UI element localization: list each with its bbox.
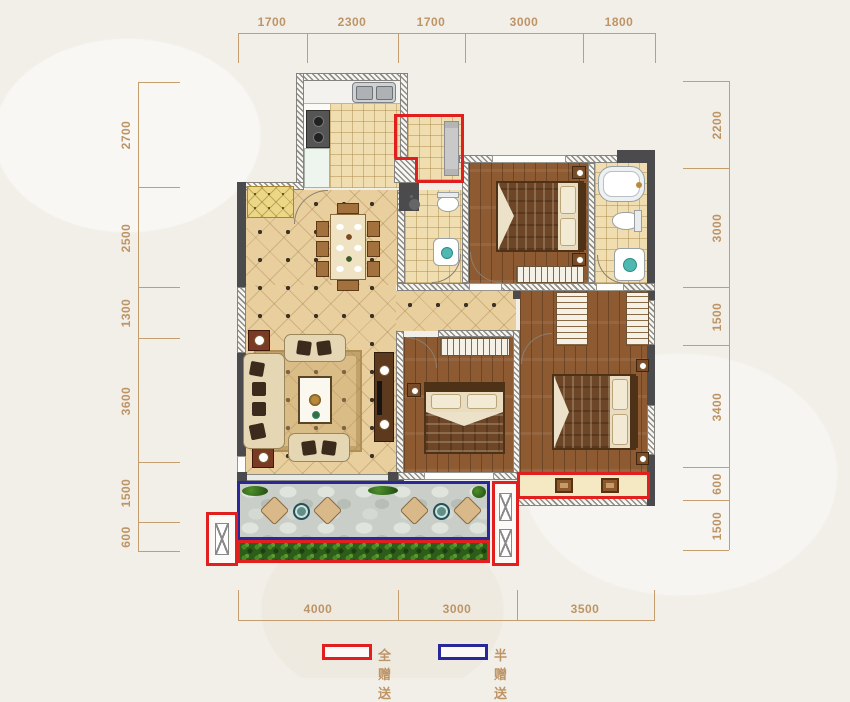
lamp-icon bbox=[576, 169, 584, 177]
dim-label: 3000 bbox=[710, 208, 724, 248]
bedroom-b-north-wall bbox=[438, 330, 520, 337]
bedroom-b-window bbox=[424, 472, 494, 480]
sofa-cushion bbox=[321, 440, 337, 456]
dim-label: 4000 bbox=[298, 602, 338, 616]
dining-chair bbox=[337, 203, 359, 214]
pillow bbox=[467, 394, 497, 409]
toilet bbox=[437, 196, 459, 212]
coffee-table-decor bbox=[309, 394, 321, 406]
wardrobe-a bbox=[516, 266, 584, 283]
dim-label: 2200 bbox=[710, 105, 724, 145]
shower-icon bbox=[409, 199, 420, 210]
sofa-cushion bbox=[316, 340, 332, 356]
pillow bbox=[560, 186, 576, 214]
bedroom-a-door-gap bbox=[469, 283, 502, 291]
sofa-cushion bbox=[252, 382, 266, 396]
nightstand bbox=[572, 166, 586, 179]
ac-unit-icon bbox=[215, 523, 229, 555]
speaker-icon bbox=[379, 365, 390, 376]
pillow bbox=[560, 218, 576, 246]
dim-tick bbox=[138, 551, 180, 552]
stool-bay-full-gift-zone bbox=[517, 472, 650, 499]
dim-tick bbox=[138, 82, 180, 83]
sink-bowl bbox=[623, 258, 637, 272]
dim-tick bbox=[655, 33, 656, 63]
dim-label: 600 bbox=[710, 464, 724, 504]
headboard bbox=[426, 384, 503, 392]
ac-unit-icon bbox=[499, 493, 512, 521]
dim-tick bbox=[138, 522, 180, 523]
dining-chair bbox=[337, 280, 359, 291]
dim-tick bbox=[654, 590, 655, 620]
pillow bbox=[612, 414, 628, 445]
legend-half-gift-swatch bbox=[438, 644, 488, 660]
left-window bbox=[237, 287, 246, 353]
wardrobe-c-right bbox=[626, 292, 649, 346]
legend-full-gift-label: 全赠送 bbox=[378, 645, 391, 702]
stool bbox=[555, 478, 573, 493]
toilet-tank bbox=[634, 210, 642, 232]
kitchen-tile-floor bbox=[330, 103, 400, 188]
hedge-full-gift-zone bbox=[237, 540, 490, 563]
dim-tick bbox=[138, 187, 180, 188]
dim-label: 1300 bbox=[119, 293, 133, 333]
bathroom1-sink bbox=[614, 248, 645, 281]
dining-table bbox=[330, 214, 366, 280]
kitchen-cabinet bbox=[304, 148, 330, 188]
lamp-icon bbox=[258, 452, 269, 463]
speaker-icon bbox=[379, 419, 390, 430]
dim-line bbox=[238, 620, 655, 621]
dim-label: 1500 bbox=[710, 506, 724, 546]
entry-closet bbox=[247, 186, 294, 218]
dining-chair bbox=[316, 221, 329, 237]
nightstand bbox=[636, 452, 649, 465]
stool bbox=[601, 478, 619, 493]
coffee-table-plant bbox=[312, 411, 320, 419]
dim-label: 600 bbox=[119, 517, 133, 557]
kitchen-sink bbox=[352, 82, 396, 103]
balcony-plant bbox=[368, 486, 398, 495]
sofa-cushion bbox=[249, 361, 265, 377]
nightstand bbox=[636, 359, 649, 372]
dim-tick bbox=[307, 33, 308, 63]
sink-basin-left bbox=[356, 86, 373, 100]
dim-line bbox=[729, 81, 730, 550]
gift-zone-appliance bbox=[444, 121, 459, 176]
dim-tick bbox=[238, 590, 239, 620]
living-b-wall bbox=[396, 331, 404, 474]
floor-plan-page: { "dimensions": { "top": ["1700","2300",… bbox=[0, 0, 850, 678]
dim-tick bbox=[683, 168, 729, 169]
dim-tick bbox=[583, 33, 584, 63]
lamp-icon bbox=[411, 387, 419, 395]
bathroom1-door-gap bbox=[596, 283, 624, 291]
nightstand bbox=[572, 253, 586, 266]
ac-platform-left bbox=[206, 512, 238, 566]
tv-cabinet bbox=[374, 352, 394, 442]
sofa-bottom bbox=[288, 433, 350, 462]
side-table-lamp bbox=[252, 447, 274, 468]
dim-tick bbox=[138, 287, 180, 288]
balcony-sliding-door bbox=[246, 474, 392, 481]
dim-tick bbox=[138, 462, 180, 463]
balcony-half-gift-zone bbox=[237, 481, 490, 540]
dim-tick bbox=[683, 287, 729, 288]
dim-label: 1500 bbox=[710, 297, 724, 337]
sink-basin-right bbox=[376, 86, 393, 100]
kitchen-left-wall bbox=[296, 73, 304, 190]
dim-label: 1500 bbox=[119, 473, 133, 513]
lamp-icon bbox=[576, 256, 584, 264]
dim-label: 3400 bbox=[710, 387, 724, 427]
wardrobe-c-left bbox=[556, 292, 588, 346]
dim-tick bbox=[238, 33, 239, 63]
sofa-cushion bbox=[296, 340, 312, 356]
headboard bbox=[578, 183, 586, 250]
dim-tick bbox=[465, 33, 466, 63]
dim-label: 1800 bbox=[599, 15, 639, 29]
faucet-icon bbox=[636, 182, 642, 188]
dim-tick bbox=[683, 550, 729, 551]
toilet-tank bbox=[437, 192, 459, 198]
dim-label: 3600 bbox=[119, 381, 133, 421]
coffee-table bbox=[298, 376, 332, 424]
dim-label: 1700 bbox=[252, 15, 292, 29]
dim-label: 3000 bbox=[437, 602, 477, 616]
sofa-top bbox=[284, 334, 346, 362]
b-c-wall bbox=[513, 330, 520, 474]
balcony-plant bbox=[472, 486, 486, 498]
sofa-main bbox=[243, 353, 285, 449]
dim-tick bbox=[683, 345, 729, 346]
dim-tick bbox=[683, 81, 729, 82]
corridor-floor bbox=[396, 291, 516, 331]
sofa-cushion bbox=[301, 440, 317, 456]
bathroom2-sink bbox=[433, 238, 459, 266]
balcony-plant bbox=[242, 486, 268, 496]
ac-unit-icon bbox=[499, 529, 512, 557]
lamp-icon bbox=[639, 455, 647, 463]
sink-bowl bbox=[441, 247, 453, 259]
bed-b-fold bbox=[426, 412, 503, 426]
bed-b bbox=[424, 382, 505, 454]
dim-tick bbox=[398, 33, 399, 63]
balcony-table bbox=[293, 503, 310, 520]
gift-zone-notch bbox=[394, 157, 418, 183]
dim-label: 2300 bbox=[332, 15, 372, 29]
legend-half-gift-label: 半赠送 bbox=[494, 645, 507, 702]
pillow bbox=[431, 394, 461, 409]
sofa-cushion bbox=[249, 423, 267, 441]
pillow bbox=[612, 379, 628, 410]
dim-label: 3500 bbox=[565, 602, 605, 616]
bedroom-a-window bbox=[492, 155, 566, 163]
dim-label: 2700 bbox=[119, 115, 133, 155]
dim-line bbox=[238, 33, 655, 34]
stool-zone-south-wall bbox=[518, 498, 648, 506]
right-window-2 bbox=[647, 405, 655, 455]
balcony-table bbox=[433, 503, 450, 520]
dining-chair bbox=[316, 261, 329, 277]
dim-label: 1700 bbox=[411, 15, 451, 29]
dim-tick bbox=[517, 590, 518, 620]
burner-1 bbox=[313, 116, 324, 127]
side-table-lamp bbox=[248, 330, 270, 351]
burner-2 bbox=[313, 132, 324, 143]
bed-c bbox=[552, 374, 636, 450]
dining-chair bbox=[316, 241, 329, 257]
dim-tick bbox=[398, 590, 399, 620]
c-door-post bbox=[513, 291, 520, 299]
headboard bbox=[630, 376, 638, 448]
bedroom-a-east-wall bbox=[588, 163, 595, 283]
ac-platform-right bbox=[492, 481, 519, 566]
sofa-cushion bbox=[252, 402, 266, 416]
tv-icon bbox=[377, 381, 382, 415]
dining-chair bbox=[367, 241, 380, 257]
bed-c-fold bbox=[554, 376, 569, 448]
kitchen-top-wall bbox=[296, 73, 408, 81]
bed-a-fold bbox=[498, 183, 514, 250]
dim-tick bbox=[138, 338, 180, 339]
dim-label: 2500 bbox=[119, 218, 133, 258]
bed-a bbox=[496, 181, 584, 252]
legend-full-gift-swatch bbox=[322, 644, 372, 660]
nightstand bbox=[407, 383, 421, 397]
wardrobe-b bbox=[440, 338, 510, 356]
floor-plan: 1700 2300 1700 3000 1800 4000 3000 3500 … bbox=[0, 0, 850, 678]
lamp-icon bbox=[639, 362, 647, 370]
dim-line bbox=[138, 82, 139, 551]
dining-chair bbox=[367, 221, 380, 237]
stove bbox=[306, 110, 330, 148]
dim-label: 3000 bbox=[504, 15, 544, 29]
lamp-icon bbox=[254, 335, 265, 346]
dining-chair bbox=[367, 261, 380, 277]
